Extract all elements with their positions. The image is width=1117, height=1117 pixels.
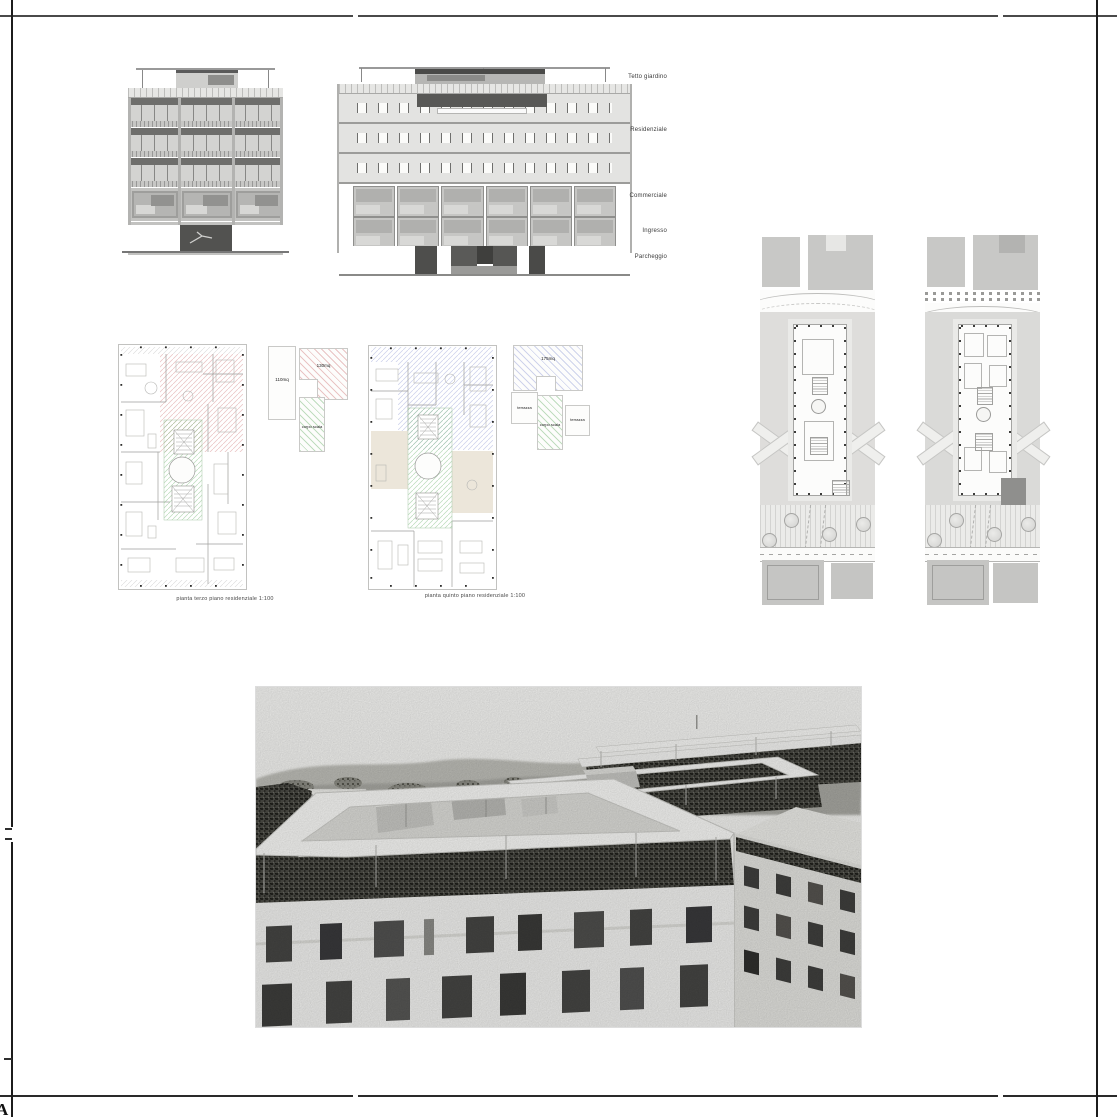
- service-block: [1001, 478, 1026, 505]
- frame-tick: [5, 828, 12, 830]
- parking-dashes: [925, 292, 1040, 295]
- floor-plan-right: [368, 345, 497, 595]
- plan-caption-right: pianta quinto piano residenziale 1:100: [400, 593, 550, 599]
- canopy-post: [605, 68, 606, 82]
- residential-floor: [128, 98, 283, 127]
- level-label: Residenziale: [630, 127, 667, 133]
- level-label: Tetto giardino: [628, 74, 667, 80]
- frame-tick-gap: [353, 1094, 358, 1098]
- road: [760, 290, 875, 312]
- frame-tick-gap: [998, 1094, 1003, 1098]
- commercial-floor: [353, 184, 616, 219]
- key-core-right: corpo scala: [537, 395, 563, 450]
- parapet-railing: [128, 88, 283, 98]
- ground-floor: [339, 246, 630, 276]
- canopy-post: [142, 70, 143, 88]
- context-building: [993, 563, 1038, 603]
- commercial-floor: [128, 188, 283, 221]
- floor-plan-left: [118, 344, 247, 595]
- key-unit-175: 175mq: [513, 345, 583, 391]
- elevation-body: [337, 84, 632, 253]
- context-building: [973, 235, 1038, 290]
- site-field: [925, 312, 1040, 505]
- level-label: Parcheggio: [635, 254, 667, 260]
- external-stair: [832, 480, 850, 496]
- ground-line: [122, 251, 289, 253]
- frame-line-left: [11, 0, 13, 1117]
- residential-floor: [128, 158, 283, 187]
- frame-line-top: [0, 15, 1117, 17]
- key-core-left: corpo scala: [299, 397, 325, 452]
- site-field: [760, 312, 875, 505]
- parking-dashes: [925, 298, 1040, 301]
- frame-tick: [4, 1058, 12, 1060]
- terrace-recess: [417, 94, 547, 107]
- site-plan-typical: [925, 235, 1040, 605]
- level-label: Ingresso: [642, 228, 667, 234]
- key-unit-110: 110mq: [268, 346, 296, 420]
- context-building: [762, 237, 800, 287]
- level-label: Commerciale: [629, 193, 667, 199]
- residential-floor: [339, 154, 630, 184]
- parapet-railing: [339, 84, 630, 94]
- section-body: [128, 88, 283, 253]
- context-building: [831, 563, 873, 599]
- canopy-post: [268, 70, 269, 88]
- key-terrace-2: terrazza: [565, 405, 590, 436]
- building-footprint: [793, 324, 847, 496]
- frame-line-bottom: [0, 1095, 1117, 1097]
- context-building: [762, 560, 824, 605]
- site-plan-ground: [760, 235, 875, 605]
- frame-tick: [5, 838, 12, 840]
- frame-line-right: [1096, 0, 1098, 1117]
- ground-floor: [128, 225, 283, 251]
- frame-tick-gap: [353, 14, 358, 18]
- context-building: [927, 237, 965, 287]
- front-elevation-drawing: [337, 60, 632, 253]
- key-unit-130: 130mq: [299, 348, 348, 400]
- building-section-drawing: [128, 68, 283, 253]
- frame-tick-gap: [998, 14, 1003, 18]
- building-footprint: [958, 324, 1012, 496]
- entrance-blocks: [415, 246, 545, 274]
- context-building: [927, 560, 989, 605]
- plan-caption-left: pianta terzo piano residenziale 1:100: [150, 596, 300, 602]
- canopy-post: [361, 68, 362, 82]
- context-building: [808, 235, 873, 290]
- residential-floor: [339, 94, 630, 124]
- commercial-floor: [353, 215, 616, 250]
- entrance-ramp: [180, 225, 232, 251]
- residential-floor: [339, 124, 630, 154]
- presentation-board: A: [0, 0, 1117, 1117]
- sheet-marker: A: [0, 1100, 8, 1117]
- residential-floor: [128, 128, 283, 157]
- perspective-render: [255, 686, 862, 1028]
- key-terrace-1: terrazza: [511, 392, 538, 424]
